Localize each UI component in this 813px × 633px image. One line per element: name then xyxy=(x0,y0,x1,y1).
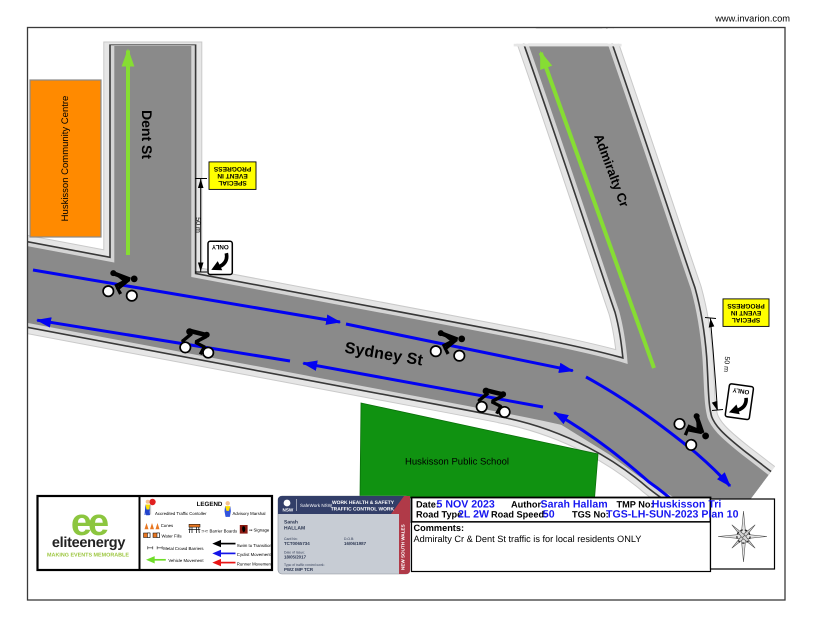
svg-text:ONLY: ONLY xyxy=(211,243,229,250)
svg-text:50 m: 50 m xyxy=(722,356,730,372)
svg-text:eliteenergy: eliteenergy xyxy=(52,535,125,551)
svg-text:www.invarion.com: www.invarion.com xyxy=(714,14,790,24)
svg-text:Type of traffic control work:: Type of traffic control work: xyxy=(284,564,325,568)
svg-text:⊃⊂ Barrier Boards: ⊃⊂ Barrier Boards xyxy=(201,528,237,533)
svg-text:LEGEND: LEGEND xyxy=(197,501,223,508)
svg-text:PROGRESS: PROGRESS xyxy=(213,165,251,172)
svg-text:Card No:: Card No: xyxy=(284,538,298,542)
svg-text:WORK HEALTH & SAFETY: WORK HEALTH & SAFETY xyxy=(332,500,394,506)
svg-text:Sarah: Sarah xyxy=(284,520,298,526)
svg-text:SPECIAL: SPECIAL xyxy=(218,179,247,186)
svg-text:NEW SOUTH WALES: NEW SOUTH WALES xyxy=(401,524,406,570)
svg-text:2L 2W: 2L 2W xyxy=(458,509,489,521)
svg-text:Cones: Cones xyxy=(161,523,173,528)
svg-text:MAKING EVENTS MEMORABLE: MAKING EVENTS MEMORABLE xyxy=(47,552,129,558)
svg-text:NSW: NSW xyxy=(283,508,294,513)
svg-text:Swim to Transition: Swim to Transition xyxy=(237,543,272,548)
svg-text:TGS No:: TGS No: xyxy=(572,510,609,520)
svg-text:Road Type: Road Type xyxy=(416,510,462,520)
svg-text:EVENT IN: EVENT IN xyxy=(731,309,762,316)
svg-text:Cyclist Movement: Cyclist Movement xyxy=(237,552,271,557)
svg-text:Vehicle Movement: Vehicle Movement xyxy=(168,558,203,563)
svg-text:16/06/1987: 16/06/1987 xyxy=(344,541,366,546)
svg-text:PWZ IMP TCR: PWZ IMP TCR xyxy=(284,567,313,572)
svg-text:TCT0065734: TCT0065734 xyxy=(284,541,310,546)
svg-text:Dent St: Dent St xyxy=(139,110,155,159)
svg-text:Metal Crowd Barriers: Metal Crowd Barriers xyxy=(163,546,203,551)
svg-text:18/05/2017: 18/05/2017 xyxy=(284,555,306,560)
svg-text:Huskisson Community Centre: Huskisson Community Centre xyxy=(60,96,71,222)
svg-text:50 m: 50 m xyxy=(194,217,201,233)
svg-text:HALLAM: HALLAM xyxy=(284,526,305,532)
svg-text:SafeWork NSW: SafeWork NSW xyxy=(300,503,332,508)
svg-text:TRAFFIC CONTROL WORK: TRAFFIC CONTROL WORK xyxy=(331,507,394,513)
svg-text:Runner Movement: Runner Movement xyxy=(237,561,273,566)
svg-text:Road Speed:: Road Speed: xyxy=(491,510,547,520)
svg-text:▪▪ Signage: ▪▪ Signage xyxy=(249,528,269,533)
svg-text:SPECIAL: SPECIAL xyxy=(732,316,761,323)
svg-text:EVENT IN: EVENT IN xyxy=(217,172,248,179)
svg-text:PROGRESS: PROGRESS xyxy=(727,302,765,309)
svg-text:Accredited Traffic Contoller: Accredited Traffic Contoller xyxy=(155,511,207,516)
svg-text:Advisory Marshal: Advisory Marshal xyxy=(233,511,266,516)
svg-text:Water Fills: Water Fills xyxy=(162,534,182,539)
svg-text:TGS-LH-SUN-2023 Plan 10: TGS-LH-SUN-2023 Plan 10 xyxy=(606,509,739,521)
svg-text:Huskisson Public School: Huskisson Public School xyxy=(405,457,509,468)
svg-text:Author:: Author: xyxy=(511,499,544,509)
svg-text:D.O.B:: D.O.B: xyxy=(344,538,354,542)
svg-text:Date of Issue:: Date of Issue: xyxy=(284,551,305,555)
svg-text:Admiralty Cr & Dent St traffic: Admiralty Cr & Dent St traffic is for lo… xyxy=(414,534,642,544)
svg-text:Comments:: Comments: xyxy=(414,523,465,533)
svg-text:50: 50 xyxy=(543,509,555,521)
